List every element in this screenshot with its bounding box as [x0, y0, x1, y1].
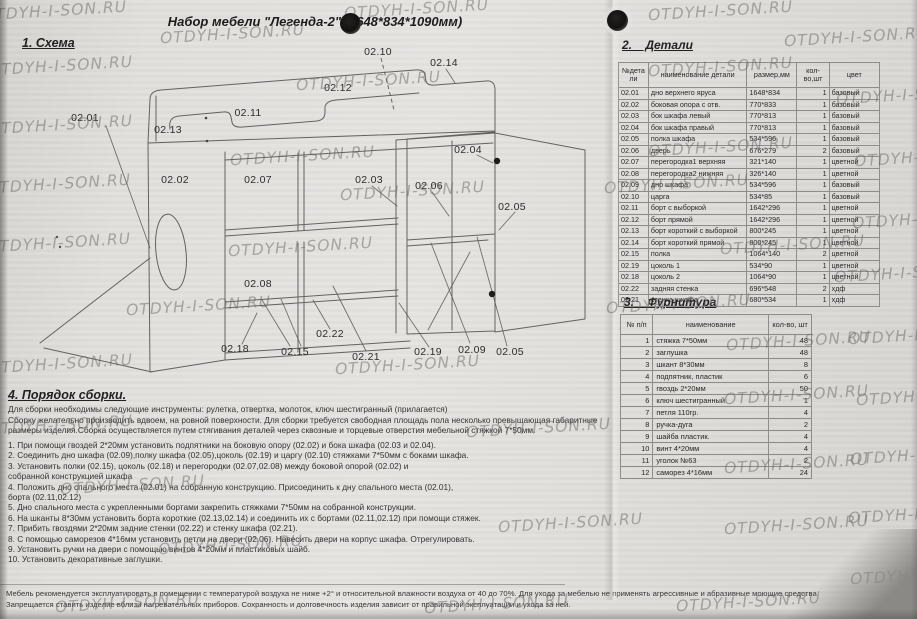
table-cell: 1 — [797, 226, 829, 238]
table-cell: борт с выборкой — [648, 203, 746, 215]
screw-dot — [206, 140, 209, 143]
table-cell: винт 4*20мм — [653, 443, 769, 455]
hardware-table: № п/пнаименованиекол-во, шт 1стяжка 7*50… — [620, 314, 812, 479]
table-cell: цветной — [829, 203, 879, 215]
table-row: 02.06дверь676*2792базовый — [619, 145, 880, 157]
table-cell: 02.15 — [619, 249, 649, 261]
watermark-text: OTDYH-I-SON.RU — [228, 234, 374, 261]
diagram-part-label: 02.22 — [316, 328, 344, 340]
table-cell: заглушка — [653, 347, 769, 359]
table-cell: 1 — [797, 214, 829, 226]
table-cell: 1 — [621, 335, 653, 347]
table-cell: 6 — [769, 371, 812, 383]
table-row: 02.09дно шкафа534*5961базовый — [619, 180, 880, 192]
table-row: 02.08перегородка2 нижняя326*1401цветной — [619, 168, 880, 180]
column-header: кол-во, шт — [769, 315, 812, 335]
table-cell: 326*140 — [747, 168, 797, 180]
table-cell: 4 — [769, 407, 812, 419]
diagram-part-label: 02.05 — [496, 346, 524, 358]
table-cell: саморез 4*16мм — [653, 467, 769, 479]
assembly-step: 2. Соединить дно шкафа (02.09),полку шка… — [8, 450, 593, 460]
table-cell: дверь — [648, 145, 746, 157]
table-cell: 800*245 — [747, 237, 797, 249]
table-cell: 770*813 — [747, 111, 797, 123]
scanned-instruction-page: Набор мебели "Легенда-2" (1648*834*1090м… — [0, 0, 917, 619]
table-row: 3шкант 8*30мм8 — [621, 359, 812, 371]
watermark-text: OTDYH-I-SON.RU — [126, 293, 272, 320]
table-cell: перегородка1 верхняя — [648, 157, 746, 169]
table-cell: цветной — [829, 214, 879, 226]
watermark-text: OTDYH-I-SON.RU — [848, 322, 917, 349]
table-cell: 770*813 — [747, 122, 797, 134]
table-row: 2заглушка48 — [621, 347, 812, 359]
column-header: №дета ли — [619, 63, 649, 88]
table-cell: 4 — [621, 371, 653, 383]
table-cell: 8 — [769, 359, 812, 371]
table-cell: 02.11 — [619, 203, 649, 215]
hole-punch — [607, 10, 628, 31]
table-cell: 1 — [797, 180, 829, 192]
watermark-text: OTDYH-I-SON.RU — [648, 0, 794, 24]
table-cell: 02.21 — [619, 295, 649, 307]
table-row: 5гвоздь 2*20мм50 — [621, 383, 812, 395]
diagram-part-label: 02.13 — [154, 124, 182, 136]
assembly-step: 3. Установить полки (02.15), цоколь (02.… — [8, 461, 593, 482]
table-cell: 800*245 — [747, 226, 797, 238]
table-cell: дно шкафа — [648, 180, 746, 192]
table-cell: цветной — [829, 260, 879, 272]
table-cell: 680*534 — [747, 295, 797, 307]
diagram-part-label: 02.10 — [364, 46, 392, 58]
diagram-part-label: 02.07 — [244, 174, 272, 186]
table-row: 02.05полка шкафа534*5961базовый — [619, 134, 880, 146]
table-row: 02.04бок шкафа правый770*8131базовый — [619, 122, 880, 134]
table-cell: 5 — [621, 383, 653, 395]
diagram-part-label: 02.04 — [454, 144, 482, 156]
table-row: 02.03бок шкафа левый770*8131базовый — [619, 111, 880, 123]
table-cell: 4 — [769, 443, 812, 455]
paper-crease — [604, 0, 620, 600]
column-header: размер,мм — [747, 63, 797, 88]
table-cell: 02.18 — [619, 272, 649, 284]
paper-edge-shadow-right — [911, 0, 917, 619]
table-cell: петля 110гр. — [653, 407, 769, 419]
intro-line: Сборку желательно производить вдвоем, на… — [8, 415, 653, 426]
table-cell: цветной — [829, 249, 879, 261]
table-cell: 1 — [797, 203, 829, 215]
table-cell: 02.04 — [619, 122, 649, 134]
table-cell: базовый — [829, 122, 879, 134]
details-table-head: №дета линаименование деталиразмер,ммкол-… — [619, 63, 880, 88]
diagram-part-label: 02.01 — [71, 112, 99, 124]
assembly-steps: 1. При помощи гвоздей 2*20мм установить … — [8, 440, 593, 565]
screw-dot — [205, 117, 208, 120]
table-cell: 1648*834 — [747, 88, 797, 100]
table-cell: базовый — [829, 88, 879, 100]
table-row: 02.07перегородка1 верхняя321*1401цветной — [619, 157, 880, 169]
table-cell: подпятник, пластик — [653, 371, 769, 383]
section-schema-heading: 1. Схема — [22, 36, 75, 50]
watermark-text: OTDYH-I-SON.RU — [0, 230, 132, 257]
table-row: 02.18цоколь 21064*901цветной — [619, 272, 880, 284]
watermark-text: OTDYH-I-SON.RU — [0, 112, 134, 139]
table-cell: гвоздь 2*20мм — [653, 383, 769, 395]
watermark-text: OTDYH-I-SON.RU — [0, 0, 128, 24]
document-title: Набор мебели "Легенда-2" (1648*834*1090м… — [150, 14, 480, 29]
table-cell: 50 — [769, 383, 812, 395]
table-cell: 02.05 — [619, 134, 649, 146]
table-cell: 2 — [797, 249, 829, 261]
table-cell: стяжка 7*50мм — [653, 335, 769, 347]
details-table: №дета линаименование деталиразмер,ммкол-… — [618, 62, 880, 307]
watermark-text: OTDYH-I-SON.RU — [340, 178, 486, 205]
table-cell: 1 — [797, 237, 829, 249]
assembly-step: 5. Дно спального места с укрепленными бо… — [8, 502, 593, 512]
table-cell: 1 — [797, 134, 829, 146]
table-cell: 02.03 — [619, 111, 649, 123]
assembly-step: 8. С помощью саморезов 4*16мм установить… — [8, 534, 593, 544]
table-cell: 3 — [621, 359, 653, 371]
watermark-text: OTDYH-I-SON.RU — [0, 53, 134, 80]
diagram-part-label: 02.05 — [498, 201, 526, 213]
table-cell: 02.22 — [619, 283, 649, 295]
table-cell: бок шкафа левый — [648, 111, 746, 123]
table-row: 02.15полка1064*1402цветной — [619, 249, 880, 261]
table-cell: цоколь 1 — [648, 260, 746, 272]
column-header: наименование — [653, 315, 769, 335]
table-cell: 48 — [769, 347, 812, 359]
watermark-text: OTDYH-I-SON.RU — [335, 352, 481, 379]
table-row: 02.12борт прямой1642*2961цветной — [619, 214, 880, 226]
table-cell: ключ шестигранный — [653, 395, 769, 407]
table-cell: 1 — [797, 111, 829, 123]
table-cell: базовый — [829, 134, 879, 146]
table-cell: 1064*140 — [747, 249, 797, 261]
table-cell: 02.14 — [619, 237, 649, 249]
assembly-step: 10. Установить декоративные заглушки. — [8, 554, 593, 564]
table-cell: 1 — [797, 157, 829, 169]
assembly-step: 4. Положить дно спального места (02.01) … — [8, 482, 593, 503]
table-cell: хдф — [829, 283, 879, 295]
speck — [56, 236, 58, 238]
assembly-step: 6. На шканты 8*30мм установить борта кор… — [8, 513, 593, 523]
section-assembly-heading: 4. Порядок сборки. — [8, 388, 126, 402]
speck — [59, 246, 61, 248]
table-cell: боковая опора с отв. — [648, 99, 746, 111]
table-cell: базовый — [829, 145, 879, 157]
diagram-part-label: 02.18 — [221, 343, 249, 355]
column-header: наименование детали — [648, 63, 746, 88]
table-cell: 2 — [769, 419, 812, 431]
table-cell: 02.12 — [619, 214, 649, 226]
assembly-step: 1. При помощи гвоздей 2*20мм установить … — [8, 440, 593, 450]
table-cell: шкант 8*30мм — [653, 359, 769, 371]
details-table-body: 02.01дно верхнего яруса1648*8341базовый0… — [619, 88, 880, 307]
assembly-intro: Для сборки необходимы следующие инструме… — [8, 404, 653, 436]
watermark-text: OTDYH-I-SON.RU — [856, 383, 917, 410]
watermark-text: OTDYH-I-SON.RU — [0, 351, 134, 378]
watermark-text: OTDYH-I-SON.RU — [230, 143, 376, 170]
table-row: 10винт 4*20мм4 — [621, 443, 812, 455]
table-cell: борт прямой — [648, 214, 746, 226]
table-row: 1стяжка 7*50мм48 — [621, 335, 812, 347]
column-header: кол- во,шт — [797, 63, 829, 88]
door-dot — [494, 158, 500, 164]
table-cell: 1 — [797, 295, 829, 307]
table-cell: 676*279 — [747, 145, 797, 157]
table-cell: 2 — [797, 283, 829, 295]
paper-edge-shadow-bottom — [0, 609, 917, 619]
diagram-part-label: 02.21 — [352, 351, 380, 363]
table-cell: 2 — [621, 347, 653, 359]
table-row: 11уголок №632 — [621, 455, 812, 467]
diagram-part-label: 02.09 — [458, 344, 486, 356]
table-cell: цоколь 2 — [648, 272, 746, 284]
table-row: 02.21стенка шкафа680*5341хдф — [619, 295, 880, 307]
table-row: 02.11борт с выборкой1642*2961цветной — [619, 203, 880, 215]
table-row: 02.02боковая опора с отв.770*8331базовый — [619, 99, 880, 111]
assembly-step: 9. Установить ручки на двери с помощью в… — [8, 544, 593, 554]
table-cell: 1 — [797, 99, 829, 111]
diagram-part-label: 02.19 — [414, 346, 442, 358]
table-cell: 02.06 — [619, 145, 649, 157]
intro-line: Для сборки необходимы следующие инструме… — [8, 404, 653, 415]
table-cell: 24 — [769, 467, 812, 479]
table-cell: цветной — [829, 226, 879, 238]
table-cell: 1064*90 — [747, 272, 797, 284]
paper-edge-shadow-left — [0, 0, 8, 619]
table-row: 02.14борт короткий прямой800*2451цветной — [619, 237, 880, 249]
watermark-text: OTDYH-I-SON.RU — [784, 24, 917, 51]
diagram-part-label: 02.08 — [244, 278, 272, 290]
table-cell: цветной — [829, 272, 879, 284]
hole-punch — [340, 13, 361, 34]
table-cell: 4 — [769, 431, 812, 443]
table-row: 02.22задняя стенка696*5482хдф — [619, 283, 880, 295]
table-surface-corner — [777, 529, 917, 619]
table-cell: 1642*296 — [747, 214, 797, 226]
table-row: 02.13борт короткий с выборкой800*2451цве… — [619, 226, 880, 238]
table-cell: базовый — [829, 111, 879, 123]
table-cell: базовый — [829, 180, 879, 192]
table-row: 02.10царга534*851базовый — [619, 191, 880, 203]
table-cell: 1 — [797, 191, 829, 203]
diagram-part-label: 02.06 — [415, 180, 443, 192]
column-header: № п/п — [621, 315, 653, 335]
paper-sheet: Набор мебели "Легенда-2" (1648*834*1090м… — [0, 0, 917, 619]
table-cell: 1 — [769, 395, 812, 407]
table-cell: 770*833 — [747, 99, 797, 111]
table-cell: 1 — [797, 168, 829, 180]
diagram-part-label: 02.15 — [281, 346, 309, 358]
table-cell: 02.07 — [619, 157, 649, 169]
section-details-heading: 2. Детали — [622, 38, 693, 52]
table-cell: 2 — [769, 455, 812, 467]
table-cell: цветной — [829, 168, 879, 180]
table-cell: 534*90 — [747, 260, 797, 272]
table-cell: борт короткий с выборкой — [648, 226, 746, 238]
table-cell: 1 — [797, 272, 829, 284]
table-cell: ручка-дуга — [653, 419, 769, 431]
table-cell: базовый — [829, 191, 879, 203]
table-cell: 534*596 — [747, 134, 797, 146]
diagram-part-label: 02.02 — [161, 174, 189, 186]
table-cell: 12 — [621, 467, 653, 479]
door-dot — [489, 291, 495, 297]
table-cell: борт короткий прямой — [648, 237, 746, 249]
diagram-part-label: 02.11 — [235, 107, 262, 119]
table-cell: 1 — [797, 260, 829, 272]
table-cell: 11 — [621, 455, 653, 467]
hardware-table-head: № п/пнаименованиекол-во, шт — [621, 315, 812, 335]
watermark-text: OTDYH-I-SON.RU — [850, 442, 917, 469]
diagram-part-label: 02.03 — [355, 174, 383, 186]
table-cell: 02.10 — [619, 191, 649, 203]
table-cell: 534*85 — [747, 191, 797, 203]
footer-divider — [0, 584, 565, 585]
table-cell: бок шкафа правый — [648, 122, 746, 134]
intro-line: размеры изделия.Сборка осуществляется пу… — [8, 425, 653, 436]
table-cell: 02.08 — [619, 168, 649, 180]
table-cell: базовый — [829, 99, 879, 111]
table-cell: уголок №63 — [653, 455, 769, 467]
table-cell: 1 — [797, 88, 829, 100]
table-cell: 02.09 — [619, 180, 649, 192]
table-cell: 2 — [797, 145, 829, 157]
diagram-part-label: 02.12 — [324, 82, 352, 94]
table-cell: задняя стенка — [648, 283, 746, 295]
table-cell: 48 — [769, 335, 812, 347]
table-cell: цветной — [829, 237, 879, 249]
table-cell: перегородка2 нижняя — [648, 168, 746, 180]
watermark-text: OTDYH-I-SON.RU — [848, 501, 917, 528]
table-cell: полка — [648, 249, 746, 261]
table-row: 12саморез 4*16мм24 — [621, 467, 812, 479]
table-cell: 534*596 — [747, 180, 797, 192]
table-cell: 02.01 — [619, 88, 649, 100]
table-row: 02.01дно верхнего яруса1648*8341базовый — [619, 88, 880, 100]
table-cell: стенка шкафа — [648, 295, 746, 307]
table-cell: 10 — [621, 443, 653, 455]
table-cell: 1642*296 — [747, 203, 797, 215]
table-cell: дно верхнего яруса — [648, 88, 746, 100]
panel-hole-outline — [152, 213, 190, 292]
table-cell: хдф — [829, 295, 879, 307]
table-cell: 02.02 — [619, 99, 649, 111]
column-header: цвет — [829, 63, 879, 88]
table-cell: 696*548 — [747, 283, 797, 295]
table-cell: царга — [648, 191, 746, 203]
table-row: 02.19цоколь 1534*901цветной — [619, 260, 880, 272]
table-cell: 321*140 — [747, 157, 797, 169]
table-cell: 02.13 — [619, 226, 649, 238]
table-cell: 02.19 — [619, 260, 649, 272]
watermark-text: OTDYH-I-SON.RU — [0, 171, 132, 198]
table-cell: цветной — [829, 157, 879, 169]
table-row: 4подпятник, пластик6 — [621, 371, 812, 383]
table-cell: шайба пластик. — [653, 431, 769, 443]
table-cell: полка шкафа — [648, 134, 746, 146]
table-cell: 1 — [797, 122, 829, 134]
assembly-step: 7. Прибить гвоздями 2*20мм задние стенки… — [8, 523, 593, 533]
diagram-part-label: 02.14 — [430, 57, 458, 69]
watermark-text: OTDYH-I-SON.RU — [296, 68, 442, 95]
